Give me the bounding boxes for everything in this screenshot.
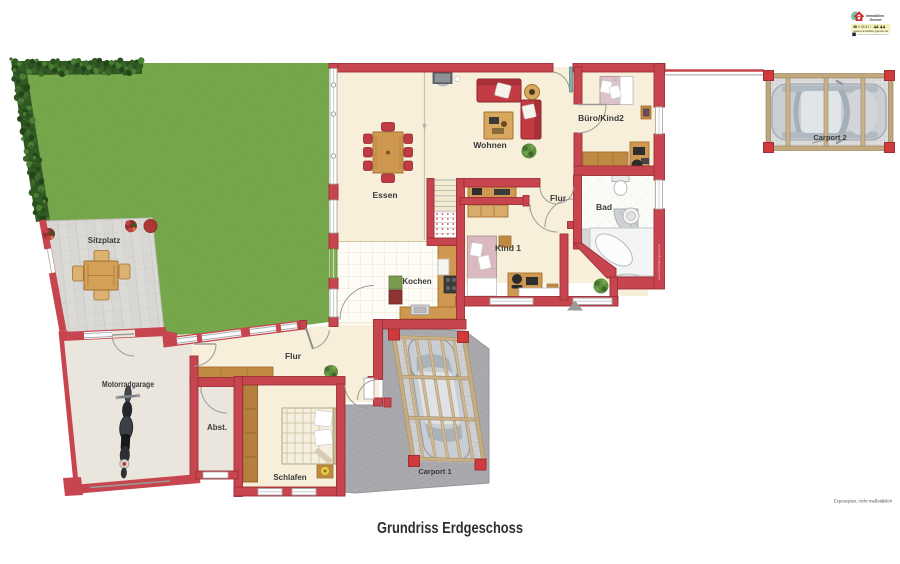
svg-text:Gervert: Gervert xyxy=(870,18,883,22)
svg-text:Carport 2: Carport 2 xyxy=(813,133,846,142)
svg-text:Flur: Flur xyxy=(550,193,567,203)
svg-text:Essen: Essen xyxy=(372,190,397,200)
svg-text:Exposeplan, nicht maßstäblich: Exposeplan, nicht maßstäblich xyxy=(834,499,893,504)
svg-text:Kochen: Kochen xyxy=(402,277,431,286)
svg-text:Abst.: Abst. xyxy=(207,423,227,432)
svg-text:Schlafen: Schlafen xyxy=(273,473,306,482)
svg-text:www.immobilien-gervert.de: www.immobilien-gervert.de xyxy=(657,244,661,280)
svg-text:Bad: Bad xyxy=(596,202,612,212)
svg-text:Carport 1: Carport 1 xyxy=(418,467,451,476)
svg-text:Büro/Kind2: Büro/Kind2 xyxy=(578,113,624,123)
svg-text:Motorradgarage: Motorradgarage xyxy=(102,380,154,389)
svg-text:Kind 1: Kind 1 xyxy=(495,243,521,253)
svg-text:Grundriss Erdgeschoss: Grundriss Erdgeschoss xyxy=(377,520,523,537)
svg-text:www.immobilien-gervert.de: www.immobilien-gervert.de xyxy=(854,29,889,33)
svg-text:Sitzplatz: Sitzplatz xyxy=(88,236,120,245)
svg-text:Flur: Flur xyxy=(285,351,302,361)
svg-text:Wohnen: Wohnen xyxy=(473,140,506,150)
